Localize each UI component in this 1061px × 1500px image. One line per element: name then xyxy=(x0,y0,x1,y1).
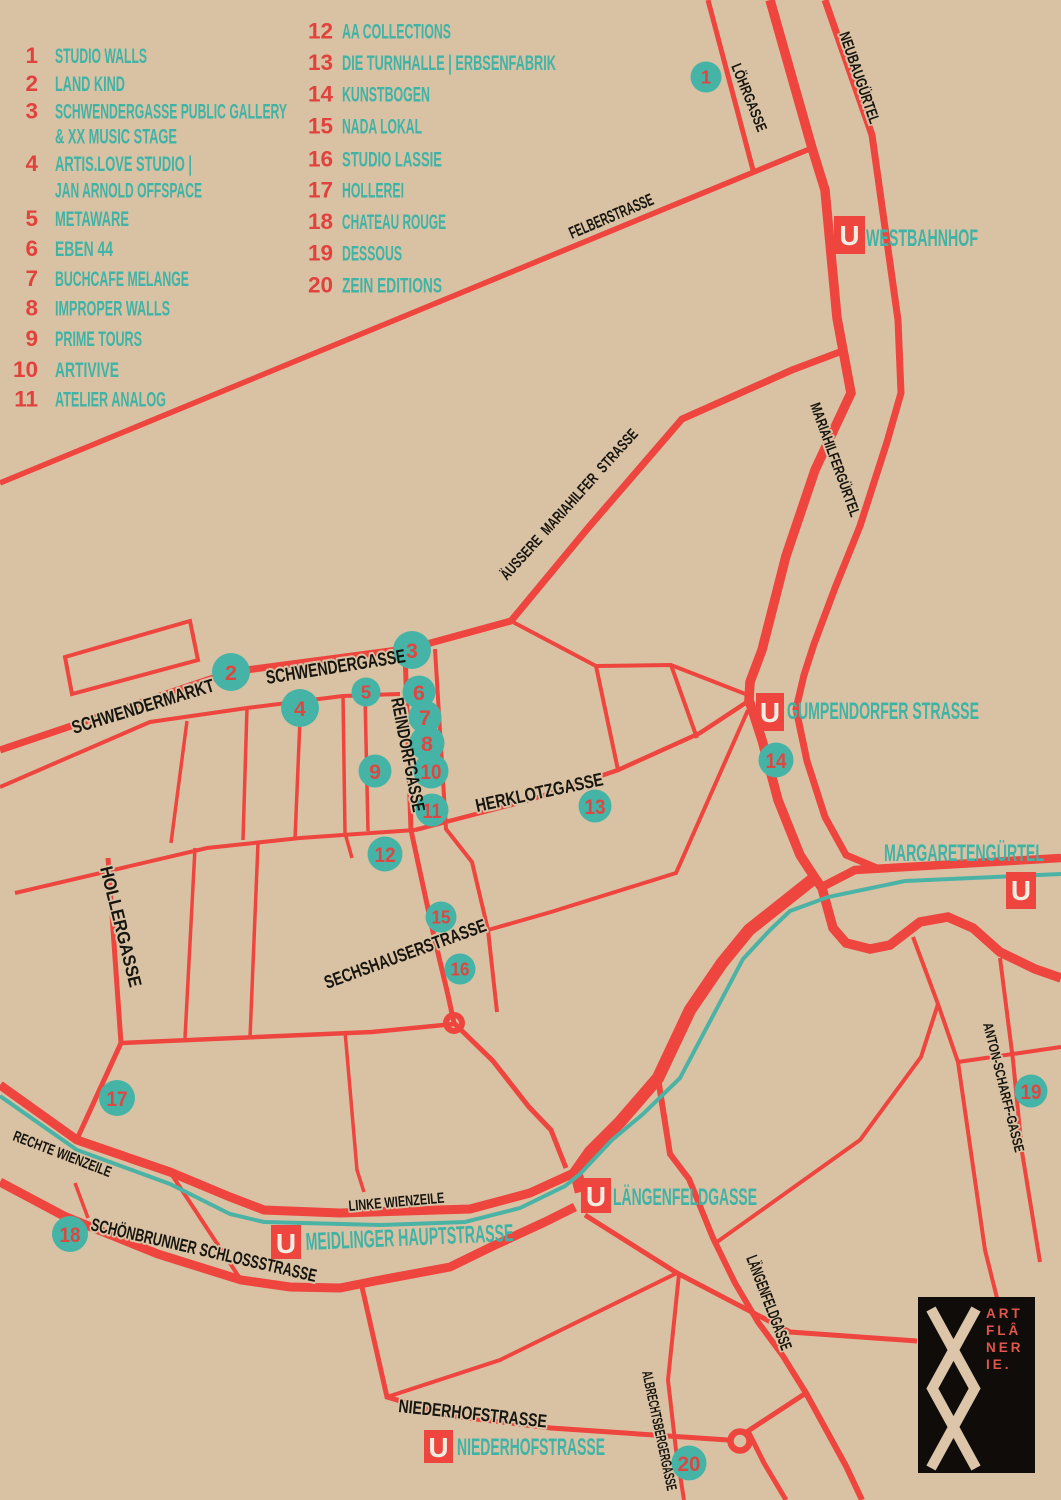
svg-text:ARTIS.LOVE STUDIO |: ARTIS.LOVE STUDIO | xyxy=(55,152,192,176)
svg-text:14: 14 xyxy=(308,82,334,107)
svg-text:5: 5 xyxy=(361,682,371,703)
svg-text:1: 1 xyxy=(701,67,711,88)
svg-text:LÄNGENFELDGASSE: LÄNGENFELDGASSE xyxy=(613,1184,757,1211)
svg-text:3: 3 xyxy=(25,99,38,124)
svg-text:U: U xyxy=(839,220,859,251)
svg-text:17: 17 xyxy=(308,178,333,203)
svg-text:12: 12 xyxy=(308,19,333,44)
svg-text:11: 11 xyxy=(14,387,38,412)
svg-text:DESSOUS: DESSOUS xyxy=(342,242,402,266)
svg-text:U: U xyxy=(428,1432,448,1463)
svg-text:15: 15 xyxy=(432,907,451,928)
svg-text:1: 1 xyxy=(25,43,38,68)
svg-text:EBEN 44: EBEN 44 xyxy=(55,237,113,261)
svg-text:U: U xyxy=(760,697,780,728)
svg-text:GUMPENDORFER STRASSE: GUMPENDORFER STRASSE xyxy=(787,698,979,725)
svg-text:7: 7 xyxy=(25,266,38,291)
svg-text:6: 6 xyxy=(25,236,38,261)
svg-text:JAN ARNOLD OFFSPACE: JAN ARNOLD OFFSPACE xyxy=(55,179,202,203)
svg-text:U: U xyxy=(1011,875,1031,906)
svg-text:CHATEAU ROUGE: CHATEAU ROUGE xyxy=(342,210,446,234)
svg-text:19: 19 xyxy=(1021,1080,1042,1104)
svg-text:& XX MUSIC STAGE: & XX MUSIC STAGE xyxy=(55,125,177,149)
svg-text:ART: ART xyxy=(986,1306,1023,1321)
svg-text:FLÂ: FLÂ xyxy=(986,1323,1021,1338)
svg-text:20: 20 xyxy=(308,273,333,298)
svg-text:NIEDERHOFSTRASSE: NIEDERHOFSTRASSE xyxy=(457,1434,605,1461)
svg-text:3: 3 xyxy=(406,639,418,663)
svg-text:15: 15 xyxy=(308,114,333,139)
svg-text:U: U xyxy=(276,1228,296,1259)
svg-text:IE.: IE. xyxy=(986,1357,1012,1372)
svg-text:IMPROPER WALLS: IMPROPER WALLS xyxy=(55,297,170,321)
svg-text:5: 5 xyxy=(25,206,38,231)
svg-text:SCHWENDERGASSE PUBLIC GALLERY: SCHWENDERGASSE PUBLIC GALLERY xyxy=(55,100,287,124)
svg-text:2: 2 xyxy=(25,71,38,96)
svg-text:PRIME TOURS: PRIME TOURS xyxy=(55,327,142,351)
svg-text:4: 4 xyxy=(25,151,38,176)
svg-text:12: 12 xyxy=(375,843,396,867)
svg-text:13: 13 xyxy=(585,795,606,819)
svg-text:18: 18 xyxy=(60,1223,81,1247)
svg-text:LAND KIND: LAND KIND xyxy=(55,72,125,96)
svg-text:ATELIER ANALOG: ATELIER ANALOG xyxy=(55,388,166,412)
svg-text:AA COLLECTIONS: AA COLLECTIONS xyxy=(342,20,451,44)
svg-text:METAWARE: METAWARE xyxy=(55,207,129,231)
svg-text:DIE TURNHALLE | ERBSENFABRIK: DIE TURNHALLE | ERBSENFABRIK xyxy=(342,51,556,75)
svg-text:14: 14 xyxy=(766,749,787,773)
svg-text:STUDIO LASSIE: STUDIO LASSIE xyxy=(342,148,442,172)
svg-text:19: 19 xyxy=(308,241,333,266)
svg-text:NADA LOKAL: NADA LOKAL xyxy=(342,115,422,139)
svg-text:13: 13 xyxy=(308,50,333,75)
svg-text:9: 9 xyxy=(25,326,38,351)
svg-text:2: 2 xyxy=(225,661,237,685)
svg-text:8: 8 xyxy=(25,296,38,321)
svg-text:4: 4 xyxy=(294,697,306,721)
svg-text:WESTBAHNHOF: WESTBAHNHOF xyxy=(866,225,978,252)
svg-text:ZEIN EDITIONS: ZEIN EDITIONS xyxy=(342,274,442,298)
svg-text:16: 16 xyxy=(451,959,470,980)
svg-text:HOLLEREI: HOLLEREI xyxy=(342,179,404,203)
svg-text:8: 8 xyxy=(421,732,433,756)
svg-text:BUCHCAFE MELANGE: BUCHCAFE MELANGE xyxy=(55,267,189,291)
svg-text:10: 10 xyxy=(13,357,38,382)
svg-text:18: 18 xyxy=(308,209,333,234)
svg-text:MARGARETENGÜRTEL: MARGARETENGÜRTEL xyxy=(884,840,1044,867)
svg-text:20: 20 xyxy=(678,1452,701,1476)
svg-text:9: 9 xyxy=(369,760,381,784)
svg-text:16: 16 xyxy=(308,147,333,172)
svg-text:NER: NER xyxy=(986,1340,1024,1355)
svg-text:17: 17 xyxy=(107,1087,128,1111)
svg-text:ARTIVIVE: ARTIVIVE xyxy=(55,358,119,382)
svg-text:STUDIO WALLS: STUDIO WALLS xyxy=(55,44,147,68)
svg-text:KUNSTBOGEN: KUNSTBOGEN xyxy=(342,83,430,107)
svg-text:U: U xyxy=(586,1181,606,1212)
